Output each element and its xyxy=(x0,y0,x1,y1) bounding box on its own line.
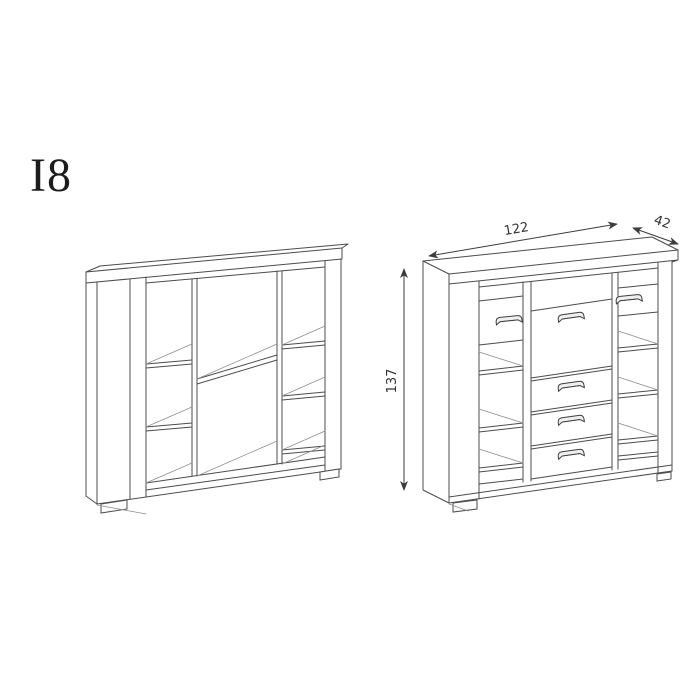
drawer-handle-icon xyxy=(616,294,643,304)
carcass-frame xyxy=(97,259,341,504)
top-panel xyxy=(423,237,678,284)
middle-door xyxy=(531,299,612,381)
door-handle-icon xyxy=(558,312,585,323)
drawer-handle-icon xyxy=(496,315,523,325)
dimension-height-arrow: 137 xyxy=(385,269,404,490)
technical-drawing-canvas: 122 42 137 xyxy=(0,0,700,700)
dimension-width-label: 122 xyxy=(503,220,530,239)
dimension-height-label: 137 xyxy=(385,369,400,394)
furniture-spec-sheet: I8 xyxy=(0,0,700,700)
left-shelf-column xyxy=(479,352,523,484)
cabinet-feet xyxy=(97,469,339,514)
middle-drawer-stack xyxy=(531,381,612,479)
drawer-handle-icon xyxy=(558,381,585,392)
dimension-depth-label: 42 xyxy=(652,213,673,233)
cabinet-front-view xyxy=(423,237,678,512)
foot xyxy=(657,472,671,481)
left-side-panel xyxy=(423,261,449,503)
dimension-depth-arrow: 42 xyxy=(633,213,678,244)
left-drawer xyxy=(479,296,523,345)
drawer-handle-icon xyxy=(558,415,585,426)
right-shelf-column xyxy=(282,326,325,464)
right-shelf-column xyxy=(618,331,658,460)
drawer-handle-icon xyxy=(558,449,585,460)
left-shelf-column xyxy=(146,344,192,483)
left-side-panel xyxy=(86,282,97,504)
middle-shelf-column xyxy=(197,344,277,476)
cabinet-open-view xyxy=(86,244,348,514)
right-drawer xyxy=(616,284,658,316)
foot xyxy=(320,469,339,480)
